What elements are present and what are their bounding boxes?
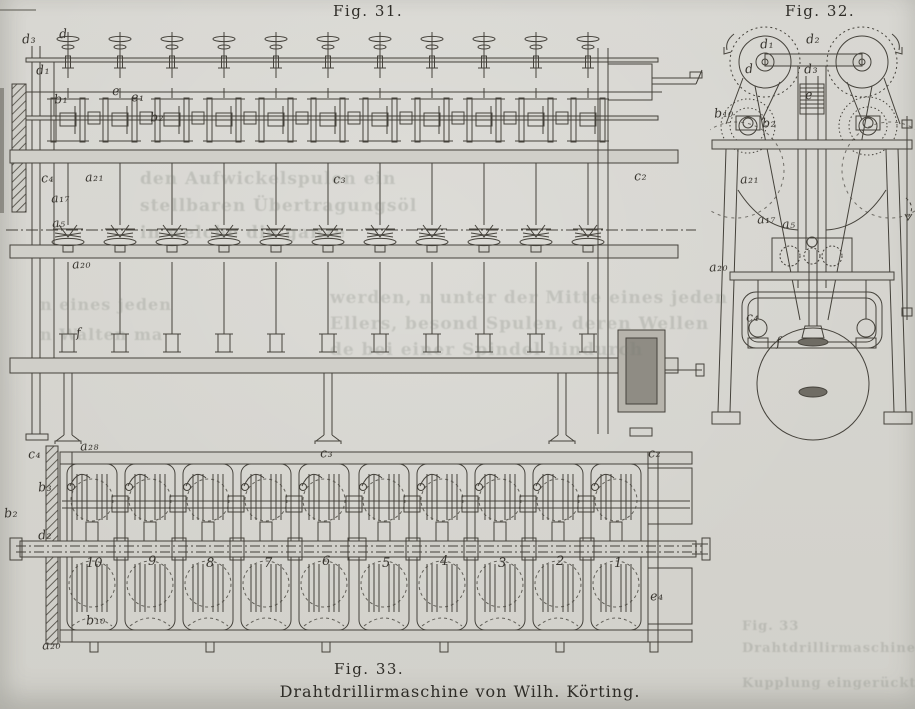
fig31-caption: Fig. 31.: [333, 2, 403, 20]
part-label: d₂: [805, 31, 820, 47]
part-label: c₄: [27, 446, 41, 462]
part-label: a₂₀: [71, 255, 91, 271]
part-label: d₁: [759, 36, 774, 52]
part-label: a₂₀: [708, 258, 728, 274]
spindle-number: 5: [382, 556, 390, 571]
part-label: d: [58, 26, 68, 42]
part-label: b₂: [3, 505, 18, 521]
spindle-number: 1: [614, 556, 622, 571]
part-label: a₅: [781, 216, 795, 232]
part-label: f: [775, 334, 781, 349]
part-label: e₁: [130, 89, 144, 105]
part-label: c₄: [40, 170, 54, 186]
part-label: f: [75, 325, 81, 340]
fig33-caption: Fig. 33.: [334, 660, 404, 678]
spindle-number: 2: [556, 554, 564, 569]
part-label: b₃: [37, 479, 52, 495]
show-through-text: Fig. 33Drahtdrillirmaschine von Wilh.Kup…: [742, 616, 915, 695]
part-label: b₂: [761, 115, 776, 131]
part-label: a₅: [51, 215, 65, 231]
part-label: c₃: [319, 445, 333, 461]
part-label: a₂₀: [41, 636, 61, 652]
part-label: e: [804, 87, 813, 103]
part-label: e: [111, 83, 120, 99]
scanned-page: Fig. 31. Fig. 32. Fig. 33. Drahtdrillirm…: [0, 0, 915, 709]
part-label: d: [744, 61, 754, 77]
part-label: a₂₁: [739, 170, 759, 186]
part-label: a₁₇: [756, 210, 776, 226]
scan-corner-mark: [0, 9, 36, 11]
spindle-number: 3: [498, 556, 506, 571]
part-label: a₂₈: [79, 437, 99, 453]
part-label: d₁: [35, 62, 50, 78]
part-label: d₃: [21, 31, 36, 47]
fig32-caption: Fig. 32.: [785, 2, 855, 20]
part-label: a₁₇: [50, 189, 70, 205]
part-label: c₃: [332, 171, 346, 187]
part-label: b₂: [149, 109, 164, 125]
part-label: c₂: [647, 445, 661, 461]
part-label: a₂₁: [84, 168, 104, 184]
part-label: c₂: [633, 168, 647, 184]
spindle-number: 6: [322, 554, 330, 569]
part-label: d₃: [803, 61, 818, 77]
fig32-drawing: [710, 20, 915, 450]
spindle-number: 10: [86, 556, 103, 571]
fig33-drawing: [2, 438, 712, 656]
part-label: b₁: [53, 91, 68, 107]
part-label: d₂: [37, 527, 52, 543]
part-label: e₄: [649, 588, 663, 604]
spindle-number: 8: [206, 556, 214, 571]
spindle-number: 4: [440, 554, 448, 569]
part-label: c₄: [745, 309, 759, 325]
part-label: b₁₀: [86, 611, 107, 627]
fig33-subcaption: Drahtdrillirmaschine von Wilh. Körting.: [240, 682, 680, 701]
spindle-number: 7: [264, 556, 272, 571]
spindle-number: 9: [148, 554, 156, 569]
part-label: b₁₀: [714, 104, 735, 120]
fig31-drawing: [2, 22, 707, 444]
